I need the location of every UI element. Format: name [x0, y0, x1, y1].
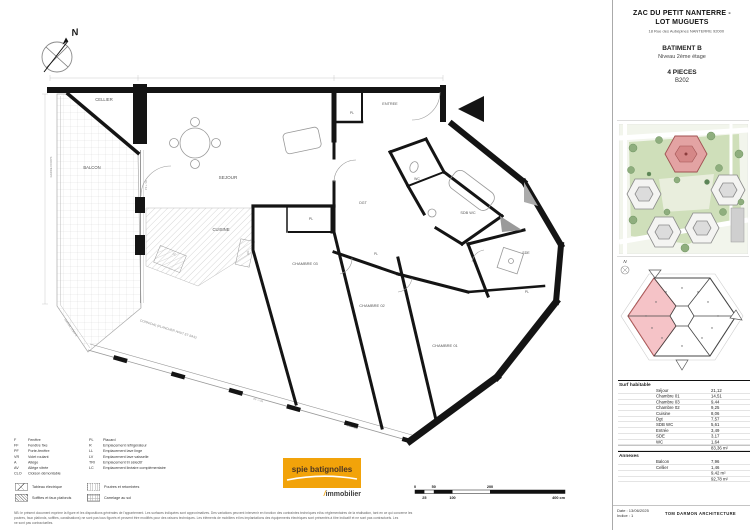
room-label: PL	[309, 217, 313, 221]
legend-swatches: Tableau électrique Poutres et retombées …	[14, 483, 254, 506]
room-label: PL	[525, 290, 529, 294]
key-plan-thumbnail: N	[616, 258, 748, 374]
svg-text:400 cm: 400 cm	[552, 496, 566, 500]
swatch-label: Carrelage au sol	[104, 496, 131, 501]
highlighted-unit	[628, 278, 676, 356]
sheet-footer: Date : 13/06/2025 Indice : 1 TOM DARMON …	[613, 505, 750, 508]
electrical-panel-swatch-icon	[15, 483, 28, 491]
building-label: BATIMENT B	[615, 45, 749, 52]
project-address: 18 Rue des Aubépines NANTERRE 92000	[649, 29, 716, 34]
habitable-total-value: 83,36 m²	[711, 446, 746, 451]
annexes-header: Annexes	[618, 451, 750, 459]
duct-shaft	[500, 216, 522, 232]
key-plan-compass-icon: N	[621, 259, 629, 274]
svg-text:100: 100	[449, 496, 455, 500]
plan-annotation: PF + VR	[144, 180, 148, 190]
logo-subtitle: /immobilier	[283, 491, 361, 498]
apartment-type: 4 PIECES	[615, 69, 749, 76]
disclaimer-note: NB: le présent document exprime la figur…	[14, 511, 604, 526]
grand-total-row: 92,78 m²	[618, 476, 750, 482]
spie-batignolles-logo: spie batignolles	[283, 458, 361, 488]
soffit-swatch-icon	[15, 494, 28, 502]
svg-text:50: 50	[432, 485, 436, 489]
swatch-label: Soffites et faux plafonds	[32, 496, 71, 501]
room-label: DGT	[359, 201, 367, 205]
annex-total-value: 9,42 m²	[711, 471, 746, 476]
scale-bar: 0 50 200 25 100 400 cm	[414, 485, 566, 500]
legend-swatch-item: Soffites et faux plafonds	[15, 494, 71, 502]
room-label: ENTREE	[382, 102, 398, 106]
svg-text:0: 0	[414, 485, 416, 489]
room-label: WC	[414, 177, 420, 181]
balcony-zone	[57, 94, 141, 352]
project-title: ZAC DU PETIT NANTERRE - LOT MUGUETS	[615, 10, 749, 27]
room-label: CELLIER	[95, 97, 112, 102]
logo-subtitle-text: immobilier	[326, 491, 361, 498]
note-line: ne sont pas contractuelles.	[14, 521, 604, 526]
room-label: SDB WC	[460, 211, 475, 215]
room-label: SDE	[522, 251, 530, 255]
swatch-label: Tableau électrique	[32, 485, 62, 490]
room-label: SEJOUR	[219, 175, 238, 180]
plan-annotation: CORNICHE (PLANCHER HAUT ET BAS)	[139, 318, 197, 339]
title-block-sidebar: ZAC DU PETIT NANTERRE - LOT MUGUETS 18 R…	[612, 0, 750, 530]
legend-row: LCEmplacement linéaire complémentaire	[89, 465, 239, 471]
logo-text: spie batignolles	[283, 465, 361, 474]
room-label: BALCON	[83, 165, 100, 170]
grand-total-value: 92,78 m²	[711, 476, 746, 481]
project-title-line1: ZAC DU PETIT NANTERRE -	[615, 10, 749, 19]
legend-swatch-item: Carrelage au sol	[87, 494, 131, 502]
legend-column-2: PLPlacardREmplacement réfrigérateurLLEmp…	[89, 437, 239, 476]
room-label: PL	[374, 252, 378, 256]
indice-label: Indice : 1	[617, 514, 649, 519]
plan-annotation: GARDE CORPS	[49, 157, 53, 178]
project-title-line2: LOT MUGUETS	[615, 19, 749, 28]
legend-swatch-item: Tableau électrique	[15, 483, 62, 491]
unit-number: B202	[615, 78, 749, 84]
legend-row: CLOCloison démontable	[14, 471, 89, 477]
room-label: CUISINE	[213, 227, 230, 232]
sheet-header: ZAC DU PETIT NANTERRE - LOT MUGUETS 18 R…	[615, 10, 749, 84]
svg-text:25: 25	[422, 496, 426, 500]
date-indice: Date : 13/06/2025 Indice : 1	[617, 509, 649, 519]
legend: FFenêtreFFFenêtre fixePFPorte-fenêtreVRV…	[14, 437, 254, 506]
room-label: CHAMBRE 02	[359, 303, 385, 308]
entrance-arrow-icon	[458, 96, 484, 122]
room-label: CHAMBRE 01	[432, 343, 458, 348]
annex-rows: Balcon7,96Cellier1,46	[618, 459, 750, 470]
room-label: CHAMBRE 03	[292, 261, 318, 266]
level-label: Niveau 2ème étage	[615, 54, 749, 60]
plan-sheet: { "colors": { "logo_bg": "#F2A30A", "hig…	[0, 0, 750, 530]
legend-swatch-item: Poutres et retombées	[87, 483, 139, 491]
architect-firm: TOM DARMON ARCHITECTURE	[665, 512, 736, 517]
facade-glazing	[88, 344, 412, 441]
tiling-swatch-icon	[87, 494, 100, 502]
svg-text:200: 200	[487, 485, 493, 489]
compass-icon: N	[42, 27, 80, 72]
habitable-rows: Séjour21,12Chambre 0114,51Chambre 039,44…	[618, 388, 750, 445]
legend-column-1: FFenêtreFFFenêtre fixePFPorte-fenêtreVRV…	[14, 437, 89, 476]
surface-table: Surf habitable Séjour21,12Chambre 0114,5…	[618, 380, 750, 482]
swatch-label: Poutres et retombées	[104, 485, 139, 490]
room-label: PL	[350, 111, 354, 115]
surface-table-header: Surf habitable	[618, 380, 750, 388]
svg-text:N: N	[71, 27, 81, 39]
svg-text:N: N	[623, 259, 627, 264]
plan-annotation: TRI	[246, 250, 251, 255]
beams-swatch-icon	[87, 483, 100, 491]
site-plan-thumbnail	[619, 124, 748, 254]
